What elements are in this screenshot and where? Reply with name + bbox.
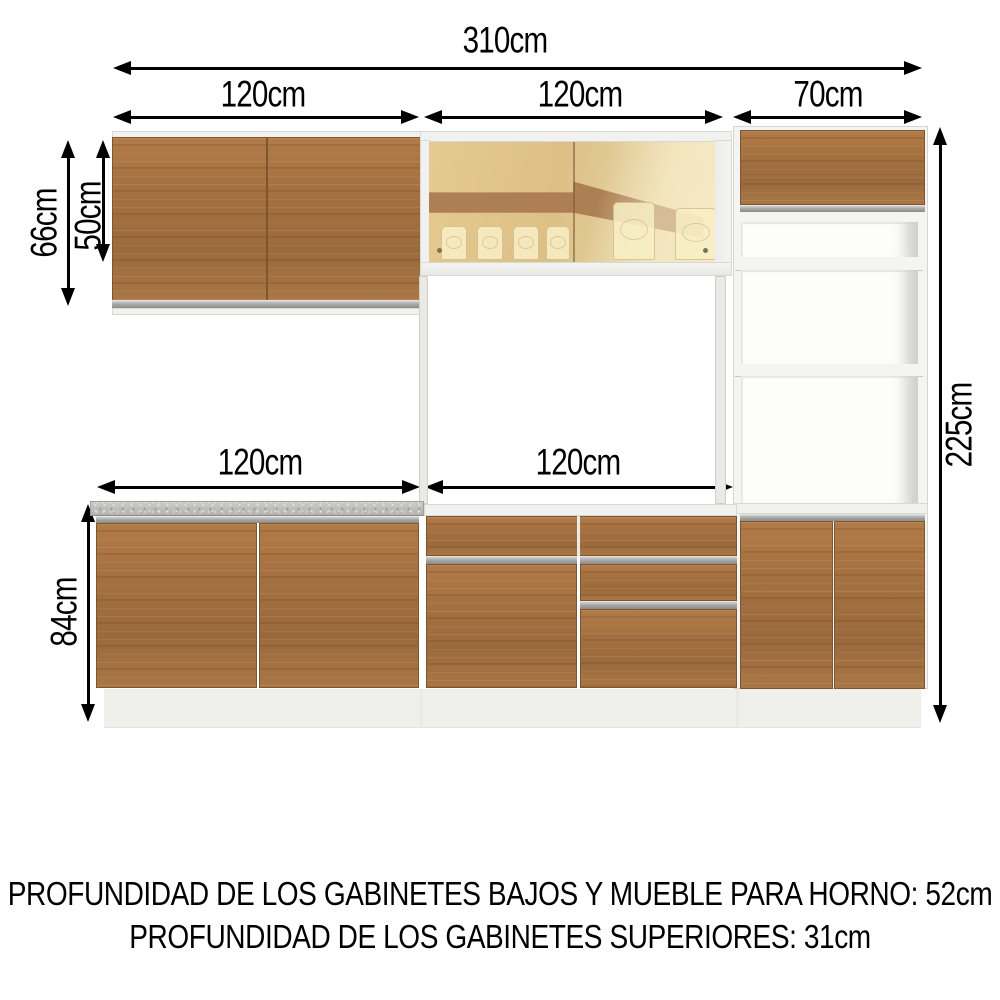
dim-arrow-upper-door-height: [95, 140, 111, 262]
glass-interior-back-wall: [429, 142, 715, 262]
glass-door-divider: [573, 142, 575, 262]
lower-middle-top: [424, 504, 737, 516]
dim-label-lower-cabinet-height: 84cm: [46, 577, 83, 646]
depth-note-upper: PROFUNDIDAD DE LOS GABINETES SUPERIORES:…: [129, 920, 871, 953]
dim-label-lower-left-width: 120cm: [218, 444, 303, 481]
lower-middle-door: [426, 564, 577, 688]
glass-door-hinge-right: [703, 248, 708, 253]
lower-left-door-left: [96, 523, 257, 688]
dim-arrow-total-width: [113, 60, 922, 76]
lower-middle-handle-right: [580, 556, 737, 564]
plinth-seam-2: [736, 689, 739, 727]
jar: [477, 226, 503, 260]
tower-lower-handle-strip: [740, 514, 925, 521]
dim-arrow-upper-left-width: [113, 109, 419, 125]
dim-arrow-upper-middle-width: [424, 109, 723, 125]
tower-counter-band: [733, 503, 928, 514]
dim-arrow-total-height: [932, 127, 948, 723]
jar: [441, 226, 467, 260]
lower-middle-drawer-1: [580, 564, 737, 601]
dim-arrow-upper-right-width: [733, 109, 922, 125]
plinth-seam-1: [420, 689, 423, 727]
upper-left-cabinet-door-right: [267, 137, 421, 301]
countertop-granite: [90, 501, 424, 516]
jar: [513, 226, 539, 260]
jar-sweets: [613, 202, 655, 260]
hutch-leg-left: [419, 276, 428, 504]
dim-label-upper-cabinet-height: 66cm: [26, 188, 63, 257]
dim-label-upper-middle-width: 120cm: [538, 76, 623, 113]
dim-arrow-lower-middle-width: [425, 479, 733, 495]
tower-top-door: [740, 130, 925, 205]
glass-cabinet-frame-right: [714, 140, 732, 276]
lower-middle-drawer-2: [580, 609, 737, 688]
tower-niche-middle: [741, 270, 918, 364]
lower-middle-top-drawer: [426, 516, 737, 556]
tower-shelf-1: [735, 257, 923, 271]
glass-cabinet-frame-top: [420, 131, 732, 142]
glass-cabinet-frame-bottom: [420, 262, 732, 276]
dim-label-lower-middle-width: 120cm: [536, 444, 621, 481]
glass-door-hinge-left: [437, 248, 442, 253]
upper-left-cabinet-door-left: [112, 137, 267, 301]
lower-middle-handle-left: [426, 556, 577, 564]
tower-niche-bottom: [741, 376, 918, 503]
drawer-seam: [577, 516, 580, 556]
dim-arrow-lower-cabinet-height: [80, 504, 96, 722]
lower-left-handle-strip: [96, 516, 419, 523]
depth-note-lower: PROFUNDIDAD DE LOS GABINETES BAJOS Y MUE…: [8, 877, 993, 910]
tower-lower-door-left: [740, 521, 833, 689]
hutch-leg-right: [715, 276, 726, 504]
upper-left-cabinet-handle-strip: [112, 300, 421, 308]
dim-label-total-width: 310cm: [463, 22, 548, 59]
lower-left-door-right: [259, 523, 419, 688]
lower-middle-handle-drawer-2: [580, 601, 737, 609]
dim-label-upper-left-width: 120cm: [221, 76, 306, 113]
dim-arrow-upper-cabinet-height: [60, 140, 76, 306]
jar: [546, 226, 570, 260]
upper-left-cabinet-bottom: [112, 308, 421, 315]
tower-top-handle-strip: [740, 205, 925, 212]
tower-niche-top: [741, 222, 918, 257]
glass-cabinet-doors: [429, 142, 715, 262]
plinth: [104, 689, 921, 728]
tower-lower-door-right: [834, 521, 925, 689]
jar-cookies: [675, 208, 715, 260]
dim-arrow-lower-left-width: [97, 479, 420, 495]
kitchen-dimension-diagram: 310cm 120cm 120cm 70cm 66cm 50cm 15cm 37…: [0, 0, 1000, 1000]
dim-label-upper-right-width: 70cm: [793, 76, 862, 113]
